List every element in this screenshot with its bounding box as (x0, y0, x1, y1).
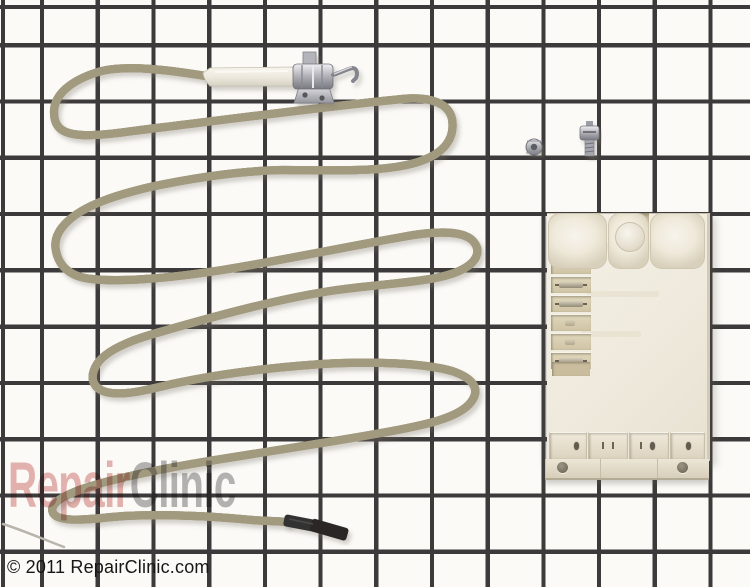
spark-module (547, 213, 710, 461)
hex-nut (526, 139, 542, 155)
face-marking (587, 291, 659, 297)
mounting-screw (580, 121, 599, 156)
terminal-cell (549, 432, 587, 460)
product-photo: RepairClinic © 2011 RepairClinic.com (0, 0, 750, 587)
spade-terminal (559, 301, 583, 307)
flange-seam (600, 459, 601, 478)
copyright-text: © 2011 RepairClinic.com (7, 557, 210, 578)
mounting-hole (557, 462, 568, 473)
coil-tower (548, 213, 607, 269)
terminal-hole (686, 442, 691, 450)
terminal-hole (602, 442, 604, 449)
thin-wire-end (3, 524, 64, 547)
terminal-hole (612, 442, 614, 449)
terminal-hole (650, 442, 655, 450)
mounting-hole (677, 462, 688, 473)
bottom-terminal-row (547, 432, 704, 460)
igniter-electrode (203, 52, 357, 103)
terminal-slot-empty (551, 334, 591, 350)
module-mounting-flange (545, 459, 709, 480)
spade-terminal (565, 320, 575, 326)
terminal-cell (670, 432, 705, 460)
terminal-slot (551, 277, 591, 293)
ceramic-insulator (203, 67, 296, 86)
watermark-clinic: Clinic (130, 449, 236, 521)
watermark-repair: Repair (8, 449, 130, 521)
spade-terminal (565, 339, 575, 345)
terminal-cell (588, 432, 628, 460)
coil-top (615, 222, 645, 252)
terminal-hole (640, 442, 642, 449)
coil-tower (650, 213, 705, 269)
open-slot (552, 362, 590, 376)
terminal-cell (629, 432, 669, 460)
spade-terminal (559, 282, 583, 288)
terminal-slot (551, 296, 591, 312)
flange-seam (657, 459, 658, 478)
terminal-slot-empty (551, 315, 591, 331)
repairclinic-watermark: RepairClinic (8, 453, 236, 517)
coil-tower (608, 213, 649, 269)
terminal-boot (283, 514, 349, 541)
terminal-hole (574, 442, 579, 450)
mounting-bracket (294, 87, 334, 103)
